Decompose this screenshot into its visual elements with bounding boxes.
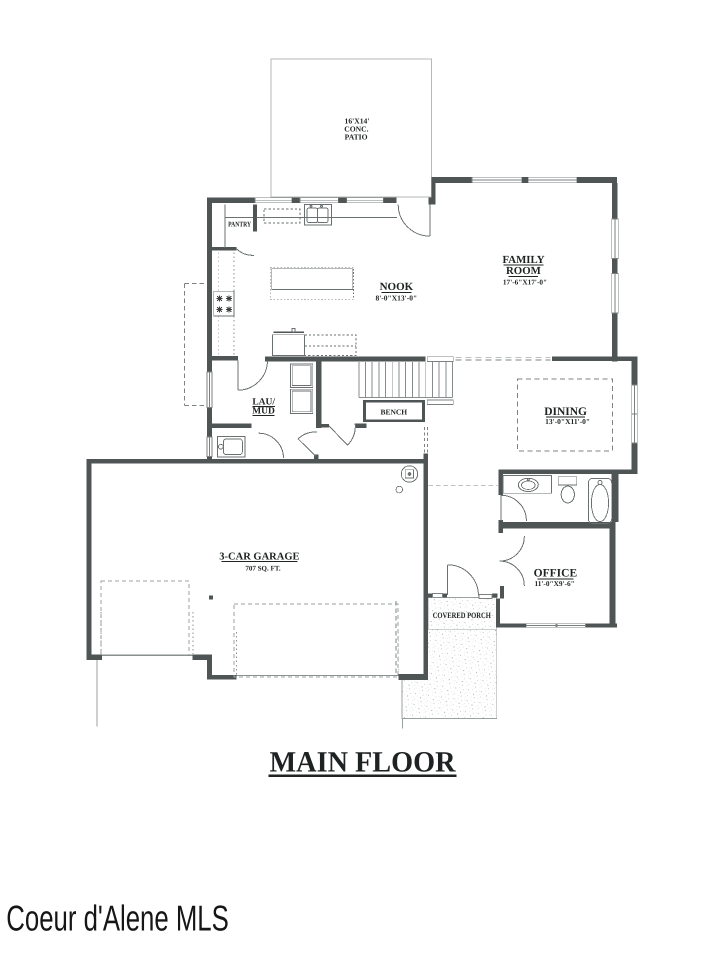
- svg-text:17'-6"X17'-0": 17'-6"X17'-0": [503, 278, 547, 287]
- svg-text:8'-0"X13'-0": 8'-0"X13'-0": [375, 293, 417, 302]
- svg-text:707 SQ. FT.: 707 SQ. FT.: [245, 565, 281, 573]
- svg-text:OFFICE: OFFICE: [534, 568, 578, 580]
- svg-text:13'-0"X11'-0": 13'-0"X11'-0": [545, 417, 590, 426]
- svg-text:Coeur d'Alene MLS: Coeur d'Alene MLS: [6, 898, 229, 939]
- svg-text:ROOM: ROOM: [506, 265, 541, 277]
- svg-text:PANTRY: PANTRY: [228, 221, 252, 229]
- svg-text:3-CAR GARAGE: 3-CAR GARAGE: [219, 552, 299, 563]
- svg-text:MAIN FLOOR: MAIN FLOOR: [270, 747, 457, 779]
- svg-text:COVERED PORCH: COVERED PORCH: [433, 611, 492, 620]
- svg-text:NOOK: NOOK: [380, 281, 414, 293]
- svg-text:11'-0"X9'-6": 11'-0"X9'-6": [535, 579, 575, 588]
- svg-text:MUD: MUD: [252, 407, 275, 417]
- svg-text:BENCH: BENCH: [380, 407, 407, 416]
- svg-text:PATIO: PATIO: [345, 132, 368, 141]
- svg-text:DINING: DINING: [544, 406, 587, 418]
- svg-text:FAMILY: FAMILY: [503, 254, 545, 266]
